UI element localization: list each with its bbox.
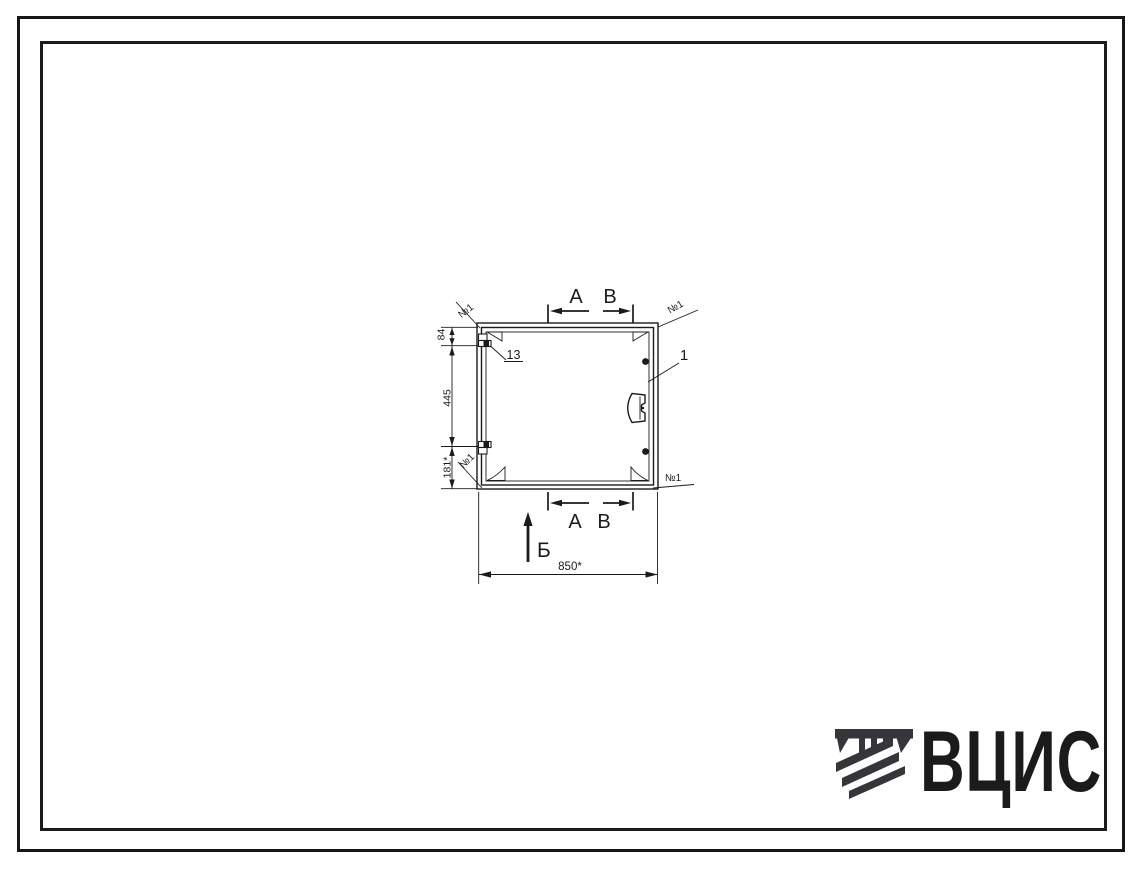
section-label-b-top: В xyxy=(603,286,616,308)
door-handle xyxy=(628,394,645,423)
technical-drawing: А В А В Б 850* xyxy=(0,0,1139,869)
section-marks-top: А В xyxy=(548,286,633,323)
section-arrow-a-top xyxy=(550,308,562,314)
gusset-top-right xyxy=(633,332,648,341)
hinge-bottom xyxy=(479,442,492,455)
callout-label-hinge: 13 xyxy=(507,348,521,362)
section-arrow-b-bottom xyxy=(619,500,631,506)
weld-mark-bottom-left: №1 xyxy=(458,451,482,488)
section-marks-bottom: А В xyxy=(548,492,633,533)
view-arrowhead xyxy=(523,512,532,526)
bolt-dot-bottom xyxy=(642,448,649,455)
gusset-bottom-left xyxy=(487,467,505,481)
logo-emblem-icon xyxy=(835,729,913,799)
view-label-b: Б xyxy=(537,539,551,562)
weld-mark-top-right: №1 xyxy=(658,299,698,327)
dim-text-bottom-offset: 181* xyxy=(442,457,454,479)
section-label-a-top: А xyxy=(569,286,583,308)
weld-mark-top-left: №1 xyxy=(456,302,480,328)
weld-label-top-left: №1 xyxy=(457,302,477,321)
section-label-a-bottom: А xyxy=(568,511,582,533)
view-arrow-b: Б xyxy=(523,512,550,562)
logo: ВЦИС xyxy=(835,713,1102,809)
hinge-top xyxy=(479,334,492,347)
dim-text-top-hinge-offset: 84 xyxy=(436,329,448,341)
gusset-bottom-right xyxy=(631,467,648,481)
weld-mark-bottom-right: №1 xyxy=(653,473,694,488)
callout-label-door-leaf: 1 xyxy=(680,347,688,364)
dimension-overall-width: 850* xyxy=(479,492,658,584)
dim-text-overall-width: 850* xyxy=(558,561,582,573)
callout-hinge-13: 13 xyxy=(491,347,523,363)
section-arrow-a-bottom xyxy=(550,500,562,506)
dim-text-hinge-spacing: 445 xyxy=(442,389,454,407)
logo-wordmark: ВЦИС xyxy=(920,713,1102,809)
hatch-front-view xyxy=(477,323,658,489)
bolt-dot-top xyxy=(642,358,649,365)
weld-label-top-right: №1 xyxy=(666,299,686,317)
section-arrow-b-top xyxy=(619,308,631,314)
gusset-top-left xyxy=(487,332,502,341)
weld-label-bottom-right: №1 xyxy=(665,473,682,484)
weld-label-bottom-left: №1 xyxy=(458,451,478,471)
section-label-b-bottom: В xyxy=(597,511,610,533)
